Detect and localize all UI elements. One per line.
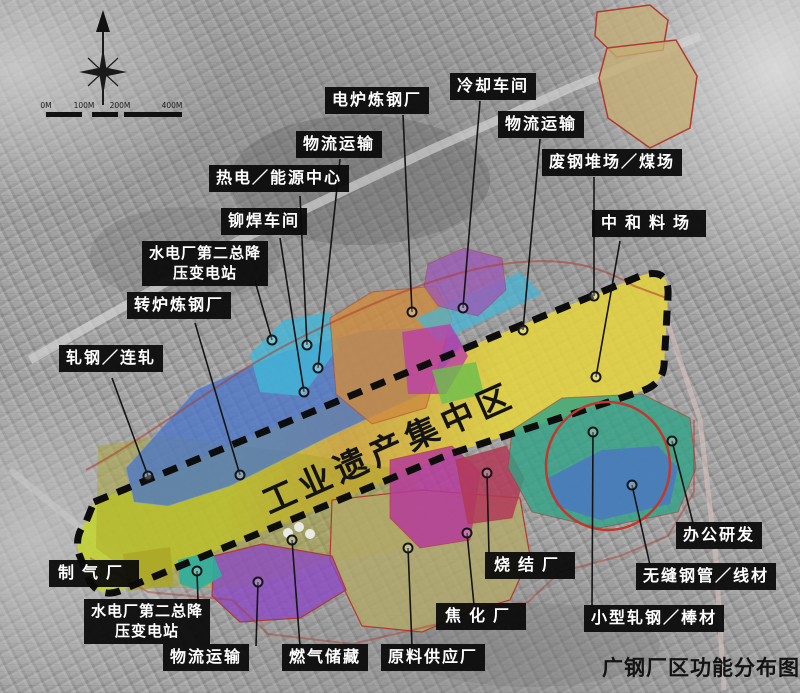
label-scrap-steel-yard-coal-yard: 废钢堆场／煤场: [542, 149, 682, 176]
label-raw-material-supply-plant: 原料供应厂: [381, 644, 485, 671]
label-sintering-plant: 烧结厂: [485, 552, 575, 579]
label-small-rolling-bar: 小型轧钢／棒材: [584, 605, 724, 632]
label-hydropower-substation-lower: 水电厂第二总降 压变电站: [84, 599, 210, 644]
zone-tan-yard-large: [599, 40, 697, 148]
label-logistics-transport-upper: 物流运输: [296, 131, 382, 158]
label-logistics-transport-lower: 物流运输: [163, 644, 249, 671]
map-title: 广钢厂区功能分布图: [602, 652, 800, 682]
scale-tick: 0M: [40, 101, 51, 110]
scale-bar: 0M 100M 200M 400M: [40, 101, 182, 117]
label-rolling-continuous-mill: 轧钢／连轧: [59, 345, 163, 372]
scale-tick: 200M: [110, 101, 131, 110]
label-riveting-welding-workshop: 铆焊车间: [221, 208, 307, 235]
label-cooling-workshop: 冷却车间: [450, 73, 536, 100]
label-office-research: 办公研发: [676, 522, 762, 549]
label-gas-making-plant: 制气厂: [49, 560, 139, 587]
label-electric-furnace-steel-plant: 电炉炼钢厂: [325, 87, 429, 114]
label-gas-storage: 燃气储藏: [282, 644, 368, 671]
label-seamless-pipe-wire: 无缝钢管／线材: [636, 563, 776, 590]
label-thermal-power-energy-center: 热电／能源中心: [209, 165, 349, 192]
label-converter-steel-plant: 转炉炼钢厂: [127, 292, 231, 319]
factory-distribution-map: 0M 100M 200M 400M 工业遗产集中区 电炉炼钢厂 冷却车间 物流运…: [0, 0, 800, 693]
zone-logistics-lower-purple: [212, 544, 346, 622]
label-neutralization-stockyard: 中和料场: [592, 210, 706, 237]
label-coking-plant: 焦化厂: [436, 603, 526, 630]
label-hydropower-substation-upper: 水电厂第二总降 压变电站: [142, 241, 268, 286]
label-logistics-transport-right: 物流运输: [498, 111, 584, 138]
compass-north-icon: [79, 10, 127, 105]
scale-tick: 100M: [74, 101, 95, 110]
scale-tick: 400M: [162, 101, 183, 110]
